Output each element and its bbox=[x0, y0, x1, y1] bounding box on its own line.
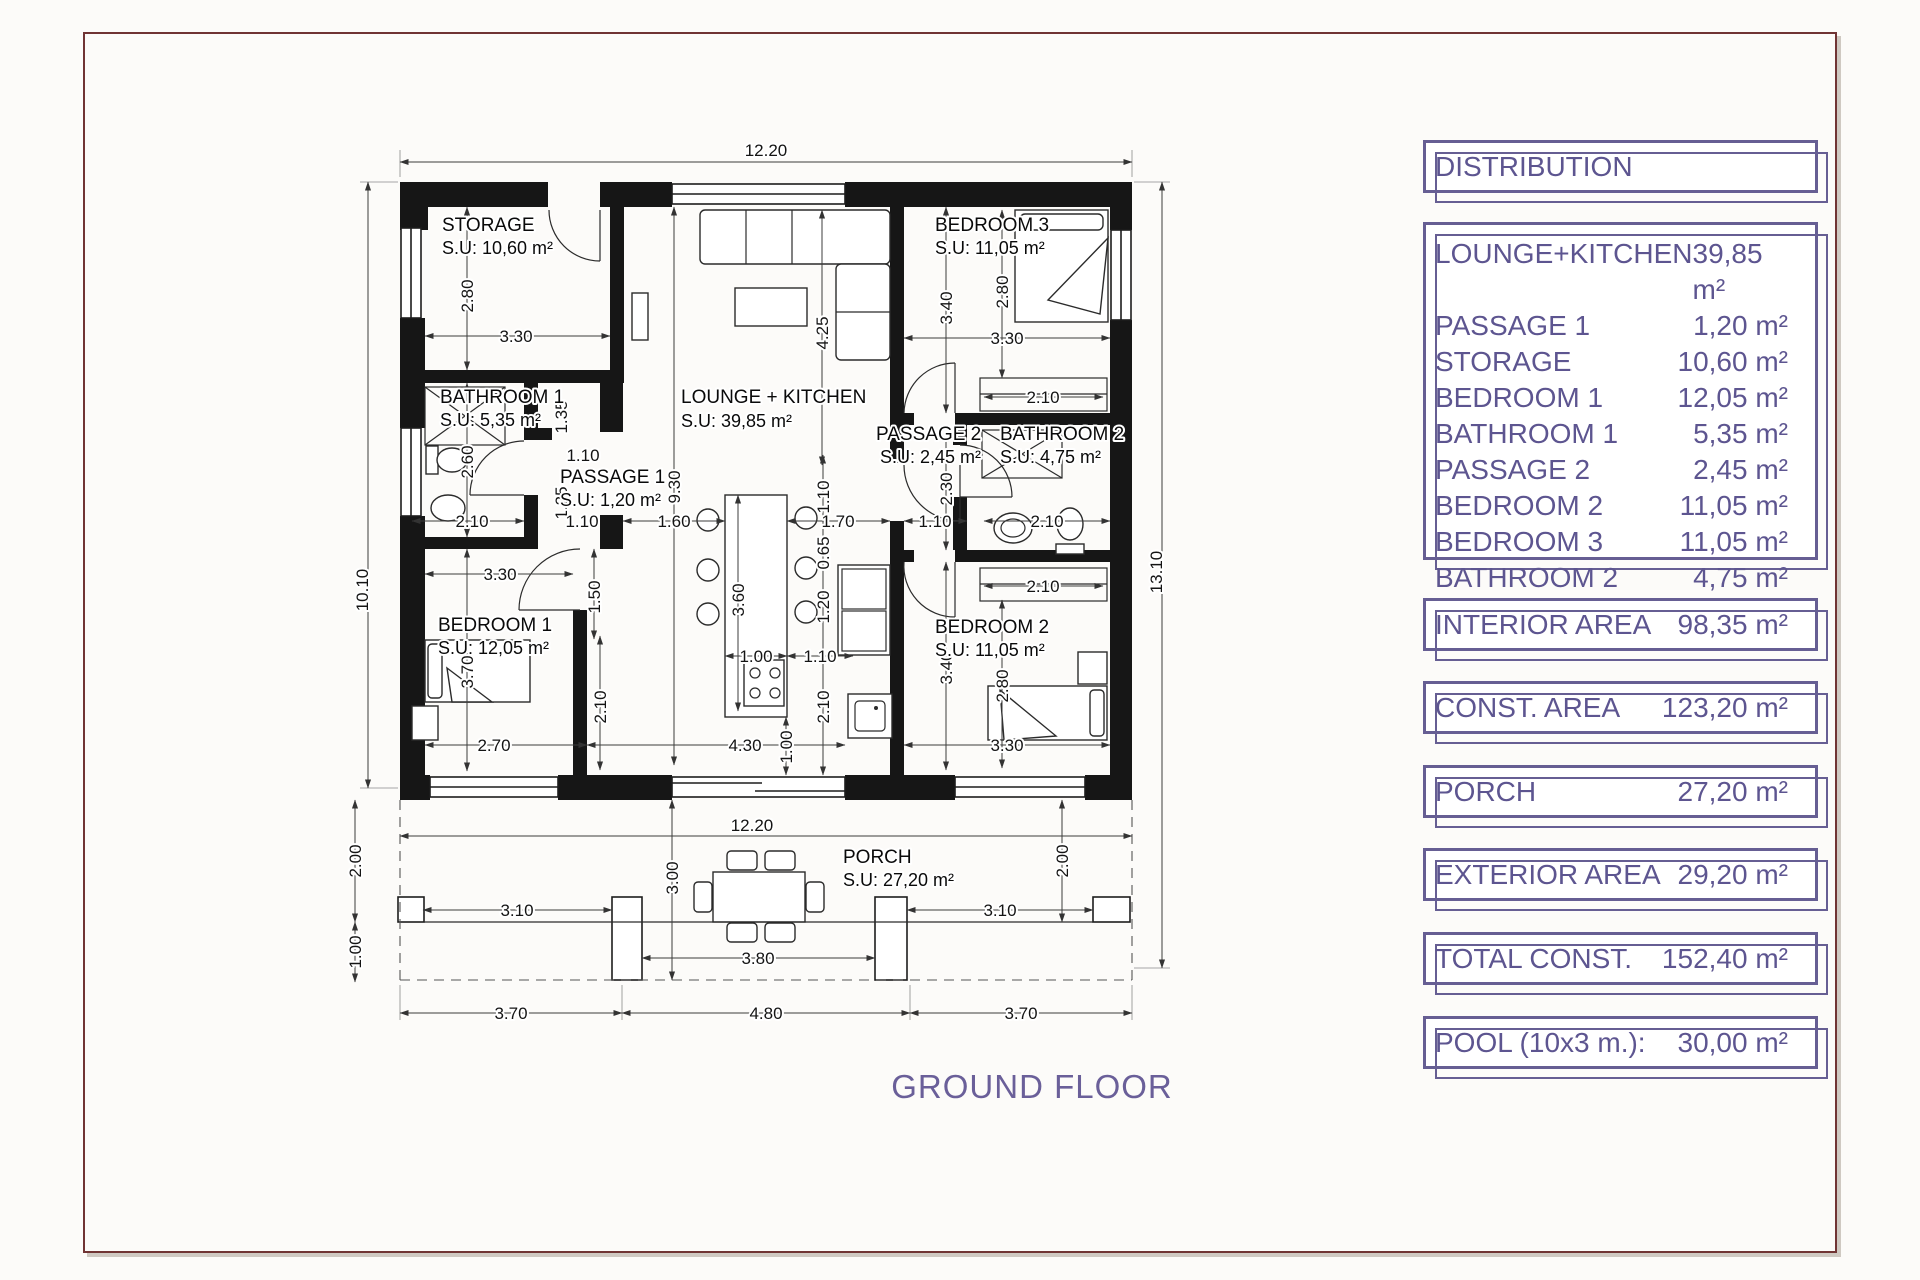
room-area: S.U: 12,05 m² bbox=[438, 638, 549, 658]
room-area: S.U: 5,35 m² bbox=[440, 410, 541, 430]
row-value: 11,05 m² bbox=[1680, 524, 1788, 560]
sofa bbox=[700, 210, 890, 360]
row-value: 12,05 m² bbox=[1678, 380, 1789, 416]
room-area: S.U: 11,05 m² bbox=[935, 640, 1045, 660]
porch-pillar bbox=[1093, 897, 1130, 922]
dim-label: 3.10 bbox=[983, 901, 1016, 920]
room-area: S.U: 27,20 m² bbox=[843, 870, 954, 890]
summary-label: INTERIOR AREA bbox=[1435, 609, 1651, 641]
room-area-row: PASSAGE 22,45 m² bbox=[1426, 452, 1815, 488]
total-const-box: TOTAL CONST.152,40 m² bbox=[1423, 932, 1818, 985]
dim-label: 9.30 bbox=[665, 470, 684, 503]
dim-label: 1.00 bbox=[777, 730, 796, 763]
summary-value: 30,00 m² bbox=[1678, 1027, 1789, 1059]
room-area-row: BATHROOM 24,75 m² bbox=[1426, 560, 1815, 596]
summary-label: POOL (10x3 m.): bbox=[1435, 1027, 1646, 1059]
dim-label: 2.80 bbox=[993, 669, 1012, 702]
room-area: S.U: 39,85 m² bbox=[681, 411, 792, 431]
stove bbox=[744, 660, 784, 706]
room-area-row: LOUNGE+KITCHEN39,85 m² bbox=[1426, 236, 1815, 308]
dim-label: 10.10 bbox=[353, 569, 372, 612]
room-area-row: PASSAGE 11,20 m² bbox=[1426, 308, 1815, 344]
row-value: 10,60 m² bbox=[1678, 344, 1789, 380]
row-value: 39,85 m² bbox=[1693, 236, 1789, 308]
dim-label: 2.80 bbox=[993, 275, 1012, 308]
dim-label: 3.30 bbox=[483, 565, 516, 584]
dim-label: 1.10 bbox=[566, 446, 599, 465]
row-label: BEDROOM 3 bbox=[1435, 524, 1603, 560]
row-label: BEDROOM 2 bbox=[1435, 488, 1603, 524]
dim-label: 3.30 bbox=[499, 327, 532, 346]
dim-label: 3.70 bbox=[494, 1004, 527, 1023]
dim-label: 1.50 bbox=[585, 580, 604, 613]
row-value: 11,05 m² bbox=[1680, 488, 1788, 524]
dim-label: 1.10 bbox=[803, 647, 836, 666]
row-label: BATHROOM 2 bbox=[1435, 560, 1618, 596]
row-label: STORAGE bbox=[1435, 344, 1571, 380]
dim-label: 1.20 bbox=[814, 590, 833, 623]
porch-dining-set bbox=[694, 851, 824, 942]
summary-value: 27,20 m² bbox=[1678, 776, 1789, 808]
porch-pillar bbox=[612, 897, 642, 980]
room-areas-box: LOUNGE+KITCHEN39,85 m² PASSAGE 11,20 m² … bbox=[1423, 222, 1818, 560]
room-label: BATHROOM 2 bbox=[1000, 424, 1124, 445]
dim-label: 1.60 bbox=[657, 512, 690, 531]
dim-label: 3.30 bbox=[990, 329, 1023, 348]
dim-label: 2.10 bbox=[455, 512, 488, 531]
room-area: S.U: 11,05 m² bbox=[935, 238, 1045, 258]
dim-label: 4.80 bbox=[749, 1004, 782, 1023]
dim-label: 3.70 bbox=[458, 655, 477, 688]
room-label: BEDROOM 2 bbox=[935, 617, 1049, 638]
row-label: PASSAGE 2 bbox=[1435, 452, 1590, 488]
dim-label: 13.10 bbox=[1147, 551, 1166, 594]
room-area: S.U: 10,60 m² bbox=[442, 238, 553, 258]
row-label: LOUNGE+KITCHEN bbox=[1435, 236, 1693, 308]
porch-pillar bbox=[398, 897, 424, 922]
dim-label: 3.00 bbox=[663, 861, 682, 894]
room-label: BATHROOM 1 bbox=[440, 387, 564, 408]
summary-label: CONST. AREA bbox=[1435, 692, 1620, 724]
sink-bathroom2 bbox=[994, 513, 1032, 543]
pool-area-box: POOL (10x3 m.):30,00 m² bbox=[1423, 1016, 1818, 1069]
room-label: BEDROOM 3 bbox=[935, 215, 1049, 236]
dim-label: 1.00 bbox=[346, 935, 365, 968]
summary-value: 123,20 m² bbox=[1662, 692, 1788, 724]
tv-unit bbox=[632, 293, 648, 340]
dim-label: 3.70 bbox=[1004, 1004, 1037, 1023]
row-label: PASSAGE 1 bbox=[1435, 308, 1590, 344]
dim-label: 0.65 bbox=[814, 536, 833, 569]
dim-label: 4.25 bbox=[813, 316, 832, 349]
room-label: BEDROOM 1 bbox=[438, 615, 552, 636]
dim-label: 2.60 bbox=[458, 445, 477, 478]
row-value: 4,75 m² bbox=[1693, 560, 1788, 596]
room-area-row: BEDROOM 112,05 m² bbox=[1426, 380, 1815, 416]
summary-value: 29,20 m² bbox=[1678, 859, 1789, 891]
dim-label: 2.30 bbox=[937, 472, 956, 505]
drawing-sheet: 12.20 10.10 13.10 12.20 3.70 4.80 3.70 2… bbox=[0, 0, 1920, 1280]
room-area-row: BATHROOM 15,35 m² bbox=[1426, 416, 1815, 452]
dim-label: 1.10 bbox=[918, 512, 951, 531]
dim-label: 1.70 bbox=[821, 512, 854, 531]
dim-label: 2.10 bbox=[1026, 577, 1059, 596]
room-area: S.U: 2,45 m² bbox=[880, 447, 981, 467]
dim-label: 2.10 bbox=[1030, 512, 1063, 531]
room-area: S.U: 1,20 m² bbox=[560, 490, 661, 510]
room-label: PASSAGE 2 bbox=[876, 424, 981, 445]
dim-label: 12.20 bbox=[745, 141, 788, 160]
dim-label: 3.10 bbox=[500, 901, 533, 920]
summary-value: 152,40 m² bbox=[1662, 943, 1788, 975]
room-area-row: STORAGE10,60 m² bbox=[1426, 344, 1815, 380]
row-label: BATHROOM 1 bbox=[1435, 416, 1618, 452]
room-label: STORAGE bbox=[442, 215, 535, 236]
summary-label: PORCH bbox=[1435, 776, 1536, 808]
distribution-title-box: DISTRIBUTION bbox=[1423, 140, 1818, 193]
summary-label: TOTAL CONST. bbox=[1435, 943, 1632, 975]
dim-label: 2.80 bbox=[458, 279, 477, 312]
bedside-table bbox=[412, 706, 438, 740]
row-value: 5,35 m² bbox=[1693, 416, 1788, 452]
const-area-box: CONST. AREA123,20 m² bbox=[1423, 681, 1818, 734]
dim-label: 2.10 bbox=[591, 690, 610, 723]
dim-label: 12.20 bbox=[731, 816, 774, 835]
porch-pillar bbox=[875, 897, 907, 980]
room-area-row: BEDROOM 311,05 m² bbox=[1426, 524, 1815, 560]
exterior-area-box: EXTERIOR AREA29,20 m² bbox=[1423, 848, 1818, 901]
ground-floor-title: GROUND FLOOR bbox=[891, 1068, 1173, 1105]
summary-value: 98,35 m² bbox=[1678, 609, 1789, 641]
dim-label: 2.70 bbox=[477, 736, 510, 755]
room-label: LOUNGE + KITCHEN bbox=[681, 387, 866, 408]
dim-label: 2.00 bbox=[346, 844, 365, 877]
dim-label: 3.80 bbox=[741, 949, 774, 968]
dim-label: 1.10 bbox=[565, 512, 598, 531]
dim-label: 4.30 bbox=[728, 736, 761, 755]
dim-label: 3.60 bbox=[729, 583, 748, 616]
room-label: PASSAGE 1 bbox=[560, 467, 665, 488]
row-value: 1,20 m² bbox=[1693, 308, 1788, 344]
room-label: PORCH bbox=[843, 847, 912, 868]
distribution-title: DISTRIBUTION bbox=[1435, 151, 1633, 182]
dim-label: 2.10 bbox=[1026, 388, 1059, 407]
dim-label: 2.00 bbox=[1053, 844, 1072, 877]
interior-area-box: INTERIOR AREA98,35 m² bbox=[1423, 598, 1818, 651]
dim-label: 3.30 bbox=[990, 736, 1023, 755]
dim-label: 2.10 bbox=[814, 690, 833, 723]
dim-label: 1.10 bbox=[814, 480, 833, 513]
porch-area-box: PORCH27,20 m² bbox=[1423, 765, 1818, 818]
room-area-row: BEDROOM 211,05 m² bbox=[1426, 488, 1815, 524]
row-label: BEDROOM 1 bbox=[1435, 380, 1603, 416]
room-area: S.U: 4,75 m² bbox=[1000, 447, 1101, 467]
row-value: 2,45 m² bbox=[1693, 452, 1788, 488]
kitchen-counter bbox=[838, 565, 892, 738]
summary-label: EXTERIOR AREA bbox=[1435, 859, 1661, 891]
dim-label: 3.40 bbox=[937, 291, 956, 324]
dim-label: 1.00 bbox=[739, 647, 772, 666]
coffee-table bbox=[735, 288, 807, 326]
